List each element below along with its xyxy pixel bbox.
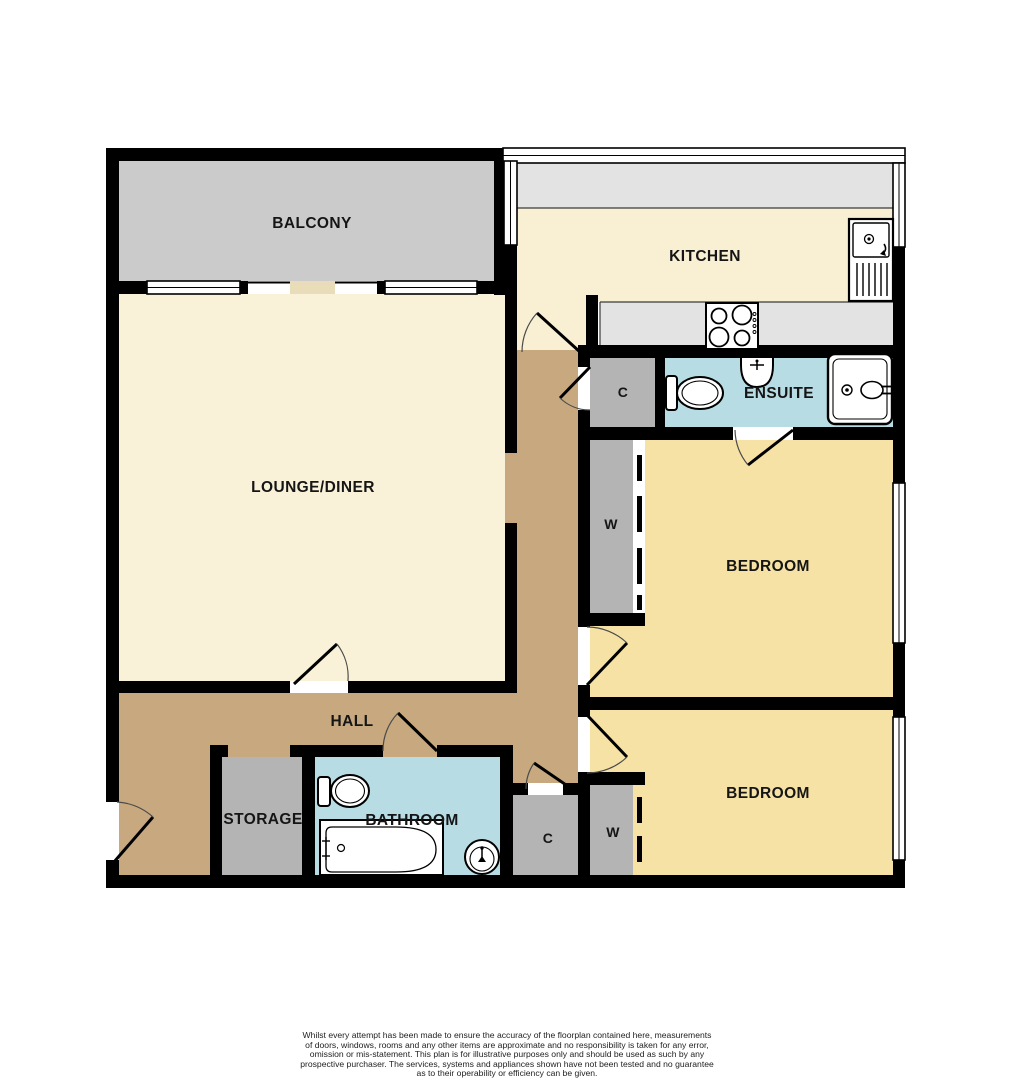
wardrobe-lower-label: W — [606, 824, 620, 840]
bedroom1-window — [893, 483, 905, 643]
closet-lower-label: C — [543, 830, 554, 846]
wardrobe-upper-label: W — [604, 516, 618, 532]
kitchen-window-right — [893, 163, 905, 247]
balcony-label: BALCONY — [272, 215, 352, 232]
bathroom-label: BATHROOM — [365, 812, 458, 829]
balcony-opening-floor — [290, 281, 335, 294]
lounge-window-left — [147, 281, 240, 294]
hob-icon — [706, 303, 758, 349]
storage-label: STORAGE — [223, 811, 302, 828]
bedroom2-window — [893, 717, 905, 860]
kitchen-sink-icon — [849, 219, 893, 301]
lounge-window-right — [385, 281, 477, 294]
ensuite-basin-icon — [741, 357, 773, 387]
bathroom-basin-icon — [465, 840, 499, 874]
hall-label: HALL — [331, 713, 374, 730]
kitchen-window-side — [504, 161, 517, 245]
room-hall-entry — [119, 757, 210, 875]
kitchen-window-top — [503, 148, 905, 163]
lounge-label: LOUNGE/DINER — [251, 479, 375, 496]
ensuite-label: ENSUITE — [744, 385, 814, 402]
ensuite-toilet-icon — [666, 376, 723, 410]
shower-icon — [828, 354, 893, 424]
bedroom-2-label: BEDROOM — [726, 785, 810, 802]
kitchen-counter-top — [517, 163, 893, 208]
floorplan-page: BALCONY KITCHEN LOUNGE/DINER ENSUITE C W… — [0, 0, 1014, 1080]
disclaimer: Whilst every attempt has been made to en… — [0, 1031, 1014, 1080]
floorplan-drawing: BALCONY KITCHEN LOUNGE/DINER ENSUITE C W… — [0, 0, 1014, 1080]
hall-lounge-opening — [505, 453, 517, 523]
kitchen-label: KITCHEN — [669, 248, 741, 265]
bathroom-toilet-icon — [318, 775, 369, 807]
bedroom-1-label: BEDROOM — [726, 558, 810, 575]
closet-upper-label: C — [618, 384, 629, 400]
